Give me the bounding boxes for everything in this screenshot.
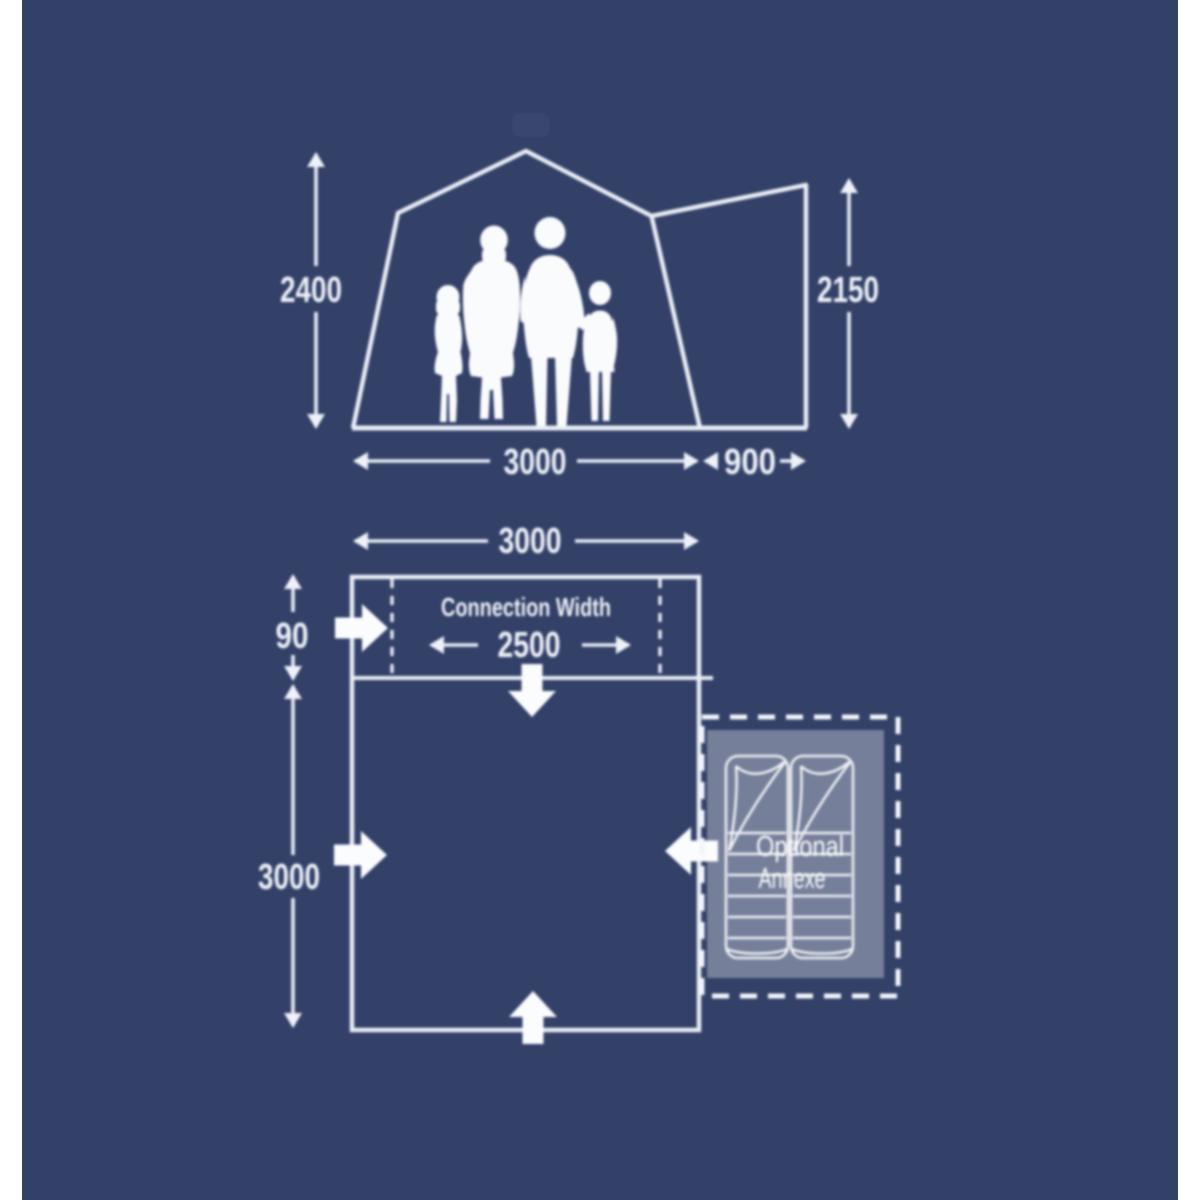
svg-text:Connection Width: Connection Width (441, 592, 611, 622)
svg-text:3000: 3000 (504, 441, 567, 482)
svg-text:Annexe: Annexe (759, 863, 826, 895)
svg-text:3000: 3000 (258, 856, 320, 897)
svg-text:2150: 2150 (817, 269, 879, 310)
svg-text:3000: 3000 (499, 520, 562, 561)
svg-text:900: 900 (724, 441, 776, 482)
svg-text:2400: 2400 (280, 269, 342, 310)
svg-text:Optional: Optional (756, 831, 844, 863)
svg-text:90: 90 (276, 615, 309, 656)
svg-text:2500: 2500 (498, 624, 561, 665)
